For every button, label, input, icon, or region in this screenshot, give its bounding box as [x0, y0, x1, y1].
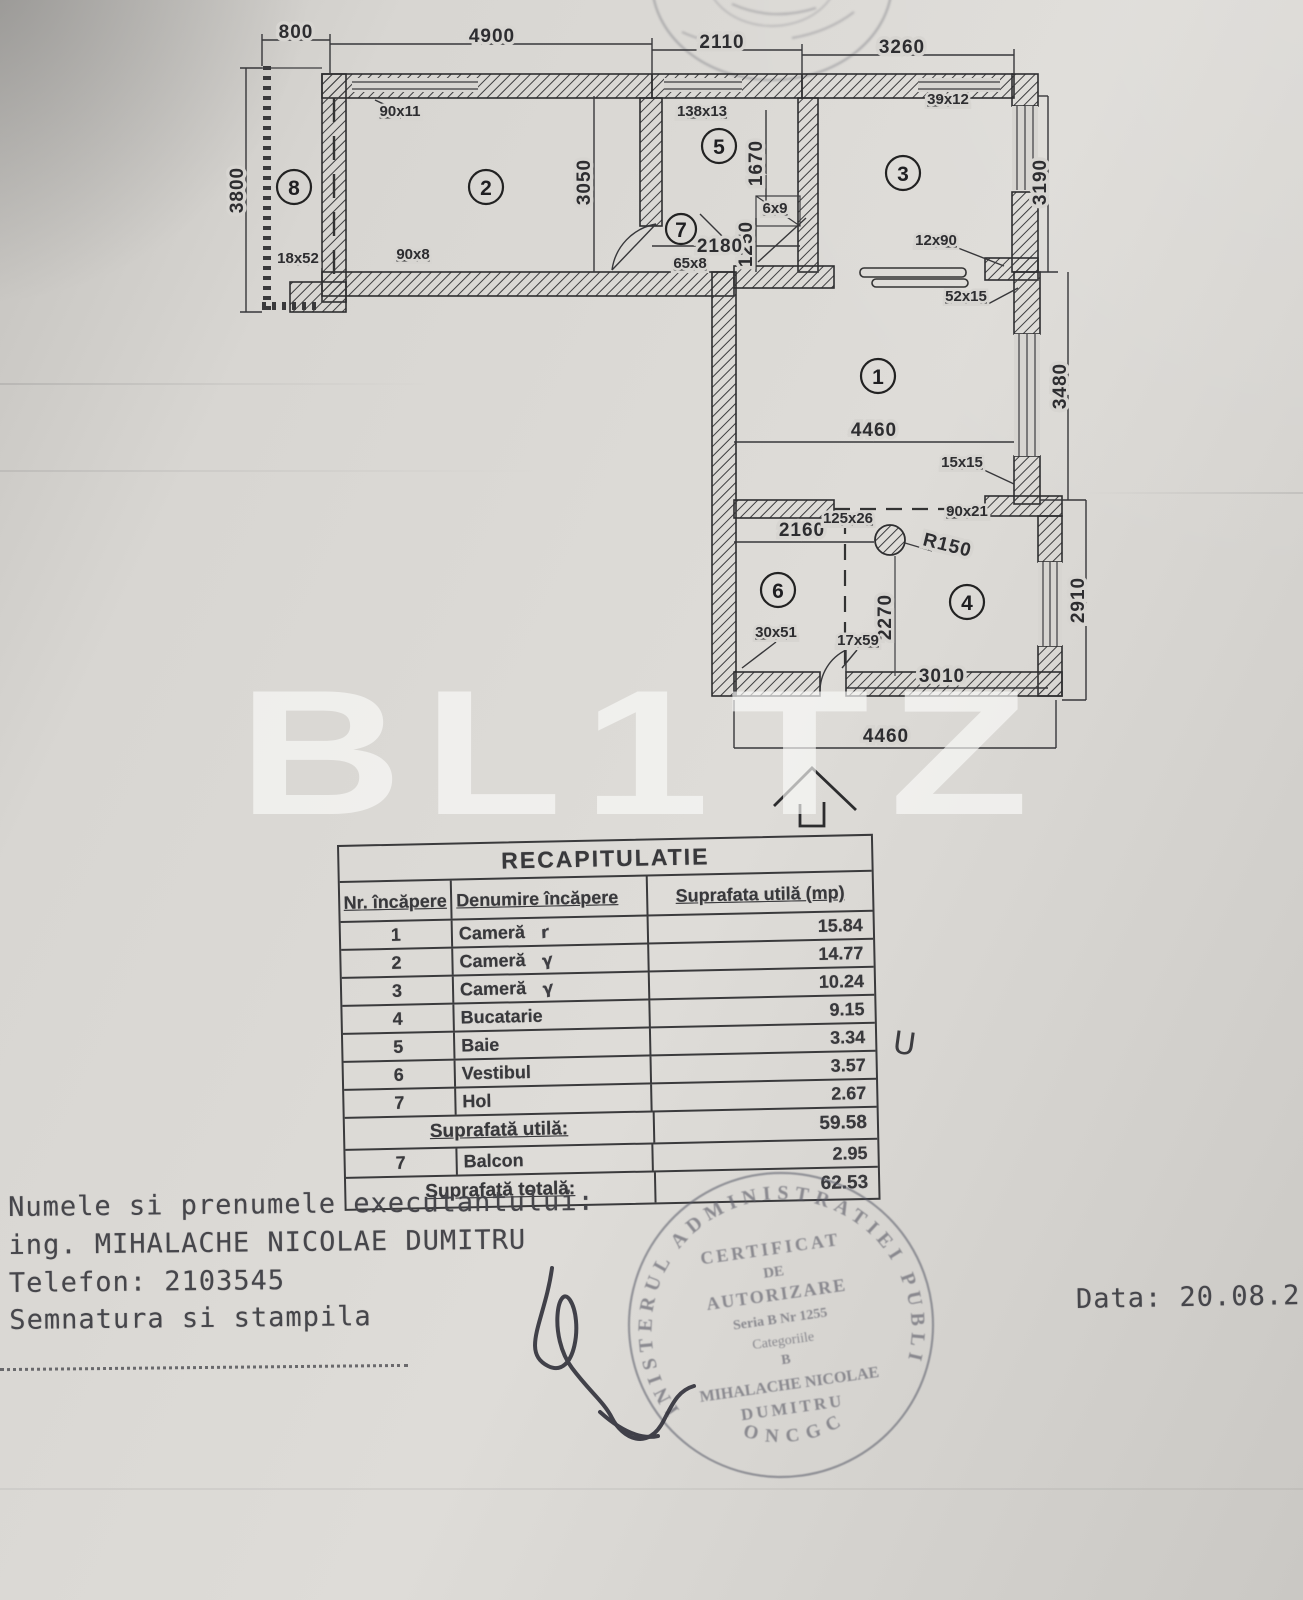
- tag-138x13: 138x13: [677, 103, 727, 120]
- tag-18x52: 18x52: [277, 250, 319, 267]
- walls: [290, 74, 1062, 696]
- date-label: Data: 20.08.2: [1076, 1280, 1301, 1315]
- cell-nr: 4: [342, 1005, 455, 1033]
- stamp-line-de: DE: [762, 1263, 785, 1282]
- cell-area: 9.15: [650, 996, 874, 1027]
- room-6-number: 6: [772, 580, 784, 603]
- dim-3050: 3050: [574, 159, 595, 205]
- dim-3010: 3010: [919, 666, 965, 687]
- dim-4460-bottom: 4460: [863, 726, 909, 747]
- room-name: Hol: [462, 1091, 491, 1112]
- cell-area: 14.77: [649, 940, 873, 971]
- cell-nr: 1: [341, 921, 454, 949]
- cell-name: Baie: [455, 1028, 652, 1058]
- dim-1670: 1670: [746, 140, 767, 186]
- tag-90x8: 90x8: [396, 246, 429, 263]
- scanned-document: 800 4900 2110 3260 3800 3050 1670 3190 3…: [0, 0, 1303, 1600]
- handwritten-signature: [500, 1240, 760, 1500]
- executor-name: ing. MIHALACHE NICOLAE DUMITRU: [8, 1225, 526, 1261]
- cell-area: 10.24: [650, 968, 874, 999]
- cell-nr: 7: [345, 1149, 458, 1177]
- dimension-lines: [240, 34, 1086, 748]
- cell-area: 3.57: [651, 1052, 875, 1083]
- tag-12x90: 12x90: [915, 232, 957, 249]
- room-name: Baie: [461, 1035, 499, 1056]
- dim-r150: R150: [921, 529, 974, 561]
- pen-mark: γ: [539, 975, 556, 1003]
- room-1-number: 1: [872, 366, 884, 389]
- header-area: Suprafata utilă (mp): [648, 872, 873, 915]
- stamp-line-categoriile: Categoriile: [751, 1330, 815, 1354]
- subtotal-value: 59.58: [655, 1108, 878, 1143]
- dim-2110: 2110: [699, 32, 744, 53]
- handwritten-u-mark: U: [891, 1025, 918, 1064]
- room-2-number: 2: [480, 177, 492, 200]
- cell-area: 15.84: [649, 912, 873, 943]
- cell-name: Camerăγ: [454, 972, 651, 1002]
- signature-label: Semnatura si stampila: [9, 1301, 372, 1336]
- dim-3480: 3480: [1050, 363, 1071, 409]
- room-name: Vestibul: [462, 1062, 531, 1083]
- header-name: Denumire încăpere: [452, 876, 649, 918]
- pen-mark: r: [538, 919, 552, 946]
- header-nr: Nr. încăpere: [340, 881, 453, 921]
- cell-name: Hol: [456, 1084, 653, 1114]
- dim-2180: 2180: [697, 236, 743, 257]
- room-name: Cameră: [459, 950, 525, 971]
- tag-65x8: 65x8: [673, 255, 706, 272]
- signature-dotted-line: [0, 1364, 408, 1371]
- room-name: Cameră: [460, 978, 526, 999]
- room-name: Cameră: [459, 922, 525, 943]
- room-3-number: 3: [897, 163, 909, 186]
- dim-800: 800: [279, 22, 314, 43]
- dim-2910: 2910: [1068, 577, 1089, 623]
- cell-name: Vestibul: [456, 1056, 653, 1086]
- cell-name: Camerăr: [453, 916, 650, 946]
- cell-name: Camerăγ: [453, 944, 650, 974]
- tag-6x9: 6x9: [762, 200, 787, 217]
- cell-nr: 2: [341, 949, 454, 977]
- cell-nr: 3: [342, 977, 455, 1005]
- cell-nr: 5: [343, 1033, 456, 1061]
- cell-area: 2.67: [652, 1080, 876, 1111]
- column-r150: [875, 525, 905, 555]
- tag-125x26: 125x26: [823, 510, 873, 527]
- windows: [352, 78, 1062, 646]
- tag-52x15: 52x15: [945, 288, 987, 305]
- tag-39x12: 39x12: [927, 91, 969, 108]
- executor-label: Numele si prenumele executantului:: [8, 1186, 595, 1223]
- dim-3260: 3260: [879, 37, 925, 58]
- phone-line: Telefon: 2103545: [9, 1265, 285, 1299]
- room-5-number: 5: [713, 136, 725, 159]
- subtotal-label: Suprafată utilă:: [345, 1112, 656, 1148]
- cell-nr: 6: [344, 1061, 457, 1089]
- dim-2160: 2160: [779, 520, 825, 541]
- cell-name: Bucatarie: [454, 1000, 651, 1030]
- stamp-line-b: B: [780, 1352, 791, 1368]
- entrance-arrow-icon: [774, 768, 856, 826]
- room-7-number: 7: [675, 219, 687, 242]
- pen-mark: γ: [539, 947, 556, 975]
- tag-90x11: 90x11: [380, 103, 421, 120]
- room-name: Balcon: [463, 1150, 523, 1171]
- room-4-number: 4: [961, 592, 973, 615]
- cell-area: 3.34: [651, 1024, 875, 1055]
- room-name: Bucatarie: [460, 1006, 542, 1028]
- tag-15x15: 15x15: [941, 454, 983, 471]
- cell-nr: 7: [344, 1089, 457, 1117]
- tag-17x59: 17x59: [837, 632, 879, 649]
- floor-plan: 800 4900 2110 3260 3800 3050 1670 3190 3…: [0, 0, 1303, 830]
- tag-30x51: 30x51: [755, 624, 797, 641]
- dim-3190: 3190: [1030, 159, 1051, 205]
- dim-4460-mid: 4460: [851, 420, 897, 441]
- dim-4900: 4900: [469, 26, 515, 47]
- tag-90x21: 90x21: [946, 503, 988, 520]
- room-8-number: 8: [288, 177, 300, 200]
- dim-3800: 3800: [227, 167, 248, 213]
